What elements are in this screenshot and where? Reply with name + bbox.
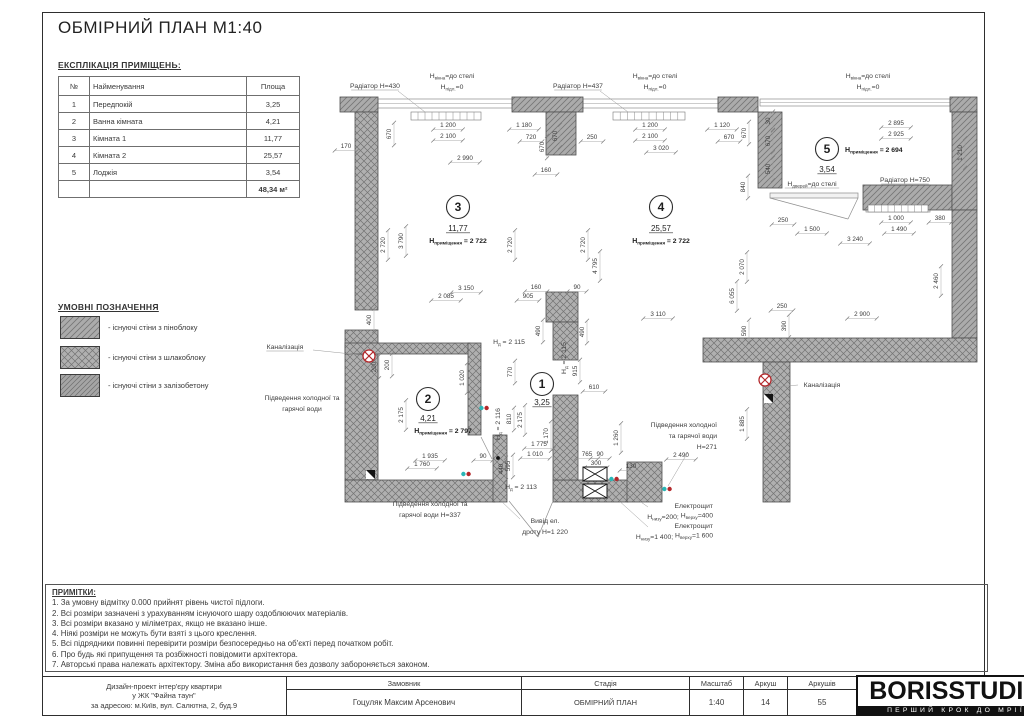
- dim-label: 2 100: [440, 133, 456, 140]
- dim-label: 1 885: [739, 416, 746, 432]
- project-line: у ЖК "Файна таун": [42, 691, 286, 701]
- studio-logo-slogan: ПЕРШИЙ КРОК ДО МРІЇ: [858, 706, 1024, 714]
- customer-cell: Замовник Гоцуляк Максим Арсенович: [287, 677, 522, 715]
- dim-label: 2 720: [580, 237, 587, 253]
- dim-label: 1 000: [888, 215, 904, 222]
- title-block: Дизайн-проект інтер'єру квартириу ЖК "Фа…: [42, 676, 983, 715]
- water-point-cold-icon: [662, 487, 666, 491]
- dim-label: 1 020: [459, 370, 466, 386]
- dim-label: 765: [582, 451, 593, 458]
- radiator: [868, 205, 928, 212]
- dim-label: 595: [505, 460, 512, 471]
- dim-label: 1 180: [516, 122, 532, 129]
- stage-value: ОБМІРНИЙ ПЛАН: [522, 690, 689, 715]
- dim-label: 2 460: [933, 273, 940, 289]
- sheets-value: 55: [788, 690, 856, 715]
- dim-label: 2 895: [888, 120, 904, 127]
- annotation-label: Нпідл.=0: [644, 84, 667, 92]
- note-item: 2. Всі розміри зазначені з урахуванням і…: [52, 609, 981, 619]
- stage-cell: Стадія ОБМІРНИЙ ПЛАН: [522, 677, 690, 715]
- annotation-label: Підведення холодної: [651, 421, 717, 429]
- dim-label: 590: [741, 325, 748, 336]
- wall-diag: [952, 112, 977, 210]
- room-number: 3: [455, 200, 462, 214]
- dim-label: 2 070: [739, 259, 746, 275]
- dim-label: 6 055: [729, 288, 736, 304]
- note-item: 1. За умовну відмітку 0.000 прийнят ріве…: [52, 598, 981, 608]
- dim-label: 30: [765, 117, 772, 125]
- water-point-hot-icon: [667, 487, 671, 491]
- dim-label: 1 490: [891, 226, 907, 233]
- project-info: Дизайн-проект інтер'єру квартириу ЖК "Фа…: [42, 677, 287, 715]
- annotation-label: Нпідл.=0: [441, 84, 464, 92]
- dim-label: 905: [523, 293, 534, 300]
- wall-diag: [512, 97, 583, 112]
- dim-label: 670: [386, 128, 393, 139]
- room-height-label: Нприміщення = 2 722: [429, 238, 487, 246]
- dim-label: 2 100: [642, 133, 658, 140]
- annotation-label: Електрощит: [674, 523, 713, 530]
- annotation-label: гарячої води: [282, 406, 322, 413]
- customer-name: Гоцуляк Максим Арсенович: [287, 690, 521, 715]
- water-point-hot-icon: [466, 472, 470, 476]
- dim-label: 810: [506, 413, 513, 424]
- annotation-label: Ннизу=200; Нверху=400: [647, 512, 713, 521]
- customer-label: Замовник: [287, 677, 521, 690]
- dim-label: 400: [366, 314, 373, 325]
- dim-label: 160: [541, 167, 552, 174]
- water-point-cold-icon: [479, 406, 483, 410]
- dim-label: 90: [596, 451, 604, 458]
- dim-label: 300: [591, 460, 602, 467]
- dim-label: 1 500: [804, 226, 820, 233]
- dim-label: 3 110: [650, 311, 666, 318]
- annotation-label: гарячої води Н=337: [399, 512, 461, 519]
- dim-label: 2 990: [457, 155, 473, 162]
- dim-label: 160: [531, 284, 542, 291]
- annotation-label: Нд = 2 113: [505, 484, 537, 492]
- dim-label: 610: [589, 384, 600, 391]
- room-area: 3,54: [819, 165, 835, 174]
- dim-label: 2 925: [888, 131, 904, 138]
- wall-diag: [340, 97, 378, 112]
- annotation-label: Радіатор Н=437: [553, 82, 603, 90]
- project-line: Дизайн-проект інтер'єру квартири: [42, 682, 286, 692]
- dim-label: 200: [384, 359, 391, 370]
- note-item: 6. Про будь які припущення та розбіжност…: [52, 650, 981, 660]
- scale-cell: Масштаб 1:40: [690, 677, 744, 715]
- dim-label: 1 200: [440, 122, 456, 129]
- dim-label: 2 175: [517, 412, 524, 428]
- drawing-sheet: { "header": {"title": "ОБМІРНИЙ ПЛАН М1:…: [0, 0, 1024, 724]
- dim-label: 3 790: [398, 233, 405, 249]
- dim-label: 670: [741, 127, 748, 138]
- water-point-cold-icon: [609, 477, 613, 481]
- annotation-label: Каналізація: [804, 381, 841, 389]
- dim-label: 90: [479, 453, 487, 460]
- dim-label: 130: [626, 463, 637, 470]
- dim-label: 670: [724, 134, 735, 141]
- sheet-value: 14: [744, 690, 787, 715]
- room-area: 3,25: [534, 398, 550, 407]
- annotation-label: Нвікна=до стелі: [633, 72, 678, 81]
- notes-list: 1. За умовну відмітку 0.000 прийнят ріве…: [52, 598, 981, 670]
- room-height-label: Нприміщення = 2 722: [632, 238, 690, 246]
- studio-logo: BORISSTUDIO ПЕРШИЙ КРОК ДО МРІЇ: [856, 675, 1024, 716]
- sheets-cell: Аркушів 55: [788, 677, 856, 715]
- wall-cross: [553, 395, 578, 480]
- dim-label: 490: [579, 326, 586, 337]
- pivot-dot: [496, 456, 500, 460]
- dim-label: 670: [552, 130, 559, 141]
- dim-label: 90: [573, 284, 581, 291]
- wall-cross: [703, 338, 977, 362]
- dim-label: 1 200: [642, 122, 658, 129]
- dim-label: 3 150: [458, 285, 474, 292]
- dim-label: 2 720: [380, 237, 387, 253]
- dim-label: 490: [535, 325, 542, 336]
- dim-label: 440: [498, 463, 505, 474]
- wall-diag: [952, 210, 977, 338]
- annotation-label: Нд = 2 115: [561, 342, 569, 374]
- annotation-label: та гарячої води: [669, 433, 717, 440]
- dim-label: 540: [765, 163, 772, 174]
- room-area: 11,77: [448, 224, 468, 233]
- dim-label: 390: [781, 320, 788, 331]
- wall-diag: [546, 112, 576, 155]
- wall-cross: [468, 343, 481, 435]
- wall-cross: [546, 292, 578, 322]
- note-item: 5. Всі підрядники повинні перевірити роз…: [52, 639, 981, 649]
- room-number: 4: [658, 200, 665, 214]
- water-point-cold-icon: [461, 472, 465, 476]
- annotation-label: Н=271: [697, 444, 717, 451]
- door-leaf: [770, 193, 858, 198]
- notes-box: ПРИМІТКИ: 1. За умовну відмітку 0.000 пр…: [45, 584, 988, 672]
- room-area: 4,21: [420, 414, 436, 423]
- annotation-label: Нд = 2 115: [493, 339, 525, 347]
- dim-label: 2 720: [507, 237, 514, 253]
- annotation-label: Нд = 2 116: [495, 408, 503, 440]
- dim-label: 1 010: [527, 451, 543, 458]
- wall-cross: [355, 112, 378, 310]
- room-height-label: Нприміщення = 2 797: [414, 428, 472, 436]
- annotation-label: Нвікна=до стелі: [846, 72, 891, 81]
- annotation-label: Ндверей=до стелі: [787, 180, 837, 189]
- annotation-label: Електрощит: [674, 503, 713, 510]
- scale-label: Масштаб: [690, 677, 743, 690]
- scale-value: 1:40: [690, 690, 743, 715]
- wall-cross: [345, 480, 495, 502]
- dim-label: 1 120: [714, 122, 730, 129]
- annotation-label: Вивід ел.: [531, 517, 560, 525]
- dim-label: 200: [371, 361, 378, 372]
- dim-label: 1 935: [422, 453, 438, 460]
- leader-line: [500, 500, 520, 519]
- dim-label: 915: [572, 365, 579, 376]
- annotation-label: Підведення холодної та: [264, 394, 339, 402]
- project-line: за адресою: м.Київ, вул. Салютна, 2, буд…: [42, 701, 286, 711]
- room-height-label: Нприміщення = 2 694: [845, 147, 903, 155]
- dim-label: 2 085: [438, 293, 454, 300]
- water-point-hot-icon: [614, 477, 618, 481]
- dim-label: 770: [507, 366, 514, 377]
- room-number: 1: [539, 377, 546, 391]
- annotation-label: Радіатор Н=750: [880, 176, 930, 184]
- notes-heading: ПРИМІТКИ:: [52, 588, 981, 598]
- sheet-label: Аркуш: [744, 677, 787, 690]
- dim-label: 670: [765, 135, 772, 146]
- studio-logo-word: BORISSTUDIO: [858, 677, 1024, 706]
- annotation-label: Ннизу=1 400; Нверху=1 600: [636, 532, 713, 541]
- room-area: 25,57: [651, 224, 672, 233]
- dim-label: 720: [526, 134, 537, 141]
- note-item: 7. Авторські права належать архітектору.…: [52, 660, 981, 670]
- dim-label: 1 210: [957, 145, 964, 161]
- dim-label: 170: [341, 143, 352, 150]
- note-item: 3. Всі розміри вказано у міліметрах, якщ…: [52, 619, 981, 629]
- annotation-label: дроту Н=1 220: [522, 529, 568, 536]
- dim-label: 2 175: [398, 407, 405, 423]
- wall-diag: [718, 97, 758, 112]
- water-point-hot-icon: [484, 406, 488, 410]
- plan-root: 6701701 2001 1802 1007206702 99016067025…: [264, 72, 977, 542]
- dim-label: 840: [740, 181, 747, 192]
- annotation-label: Нвікна=до стелі: [430, 72, 475, 81]
- dim-label: 3 240: [847, 236, 863, 243]
- sheet-cell: Аркуш 14: [744, 677, 788, 715]
- sheets-label: Аркушів: [788, 677, 856, 690]
- annotation-label: Каналізація: [267, 343, 304, 351]
- annotation-label: Радіатор Н=430: [350, 82, 400, 90]
- dim-label: 2 490: [673, 452, 689, 459]
- dim-label: 670: [539, 141, 546, 152]
- dim-label: 250: [587, 134, 598, 141]
- dim-label: 250: [778, 217, 789, 224]
- room-number: 2: [425, 392, 432, 406]
- door-swing: [770, 198, 858, 219]
- dim-label: 1 775: [531, 441, 547, 448]
- dim-label: 1 260: [613, 430, 620, 446]
- dim-label: 250: [777, 303, 788, 310]
- dim-label: 380: [935, 215, 946, 222]
- dim-label: 2 900: [854, 311, 870, 318]
- wall-diag: [950, 97, 977, 112]
- dim-label: 1 760: [414, 461, 430, 468]
- room-number: 5: [824, 142, 831, 156]
- annotation-label: Підведення холодної та: [392, 500, 467, 508]
- stage-label: Стадія: [522, 677, 689, 690]
- dim-label: 3 020: [653, 145, 669, 152]
- annotation-label: Нпідл.=0: [857, 84, 880, 92]
- dim-label: 4 795: [592, 258, 599, 274]
- note-item: 4. Ніякі розміри не можуть бути взяті з …: [52, 629, 981, 639]
